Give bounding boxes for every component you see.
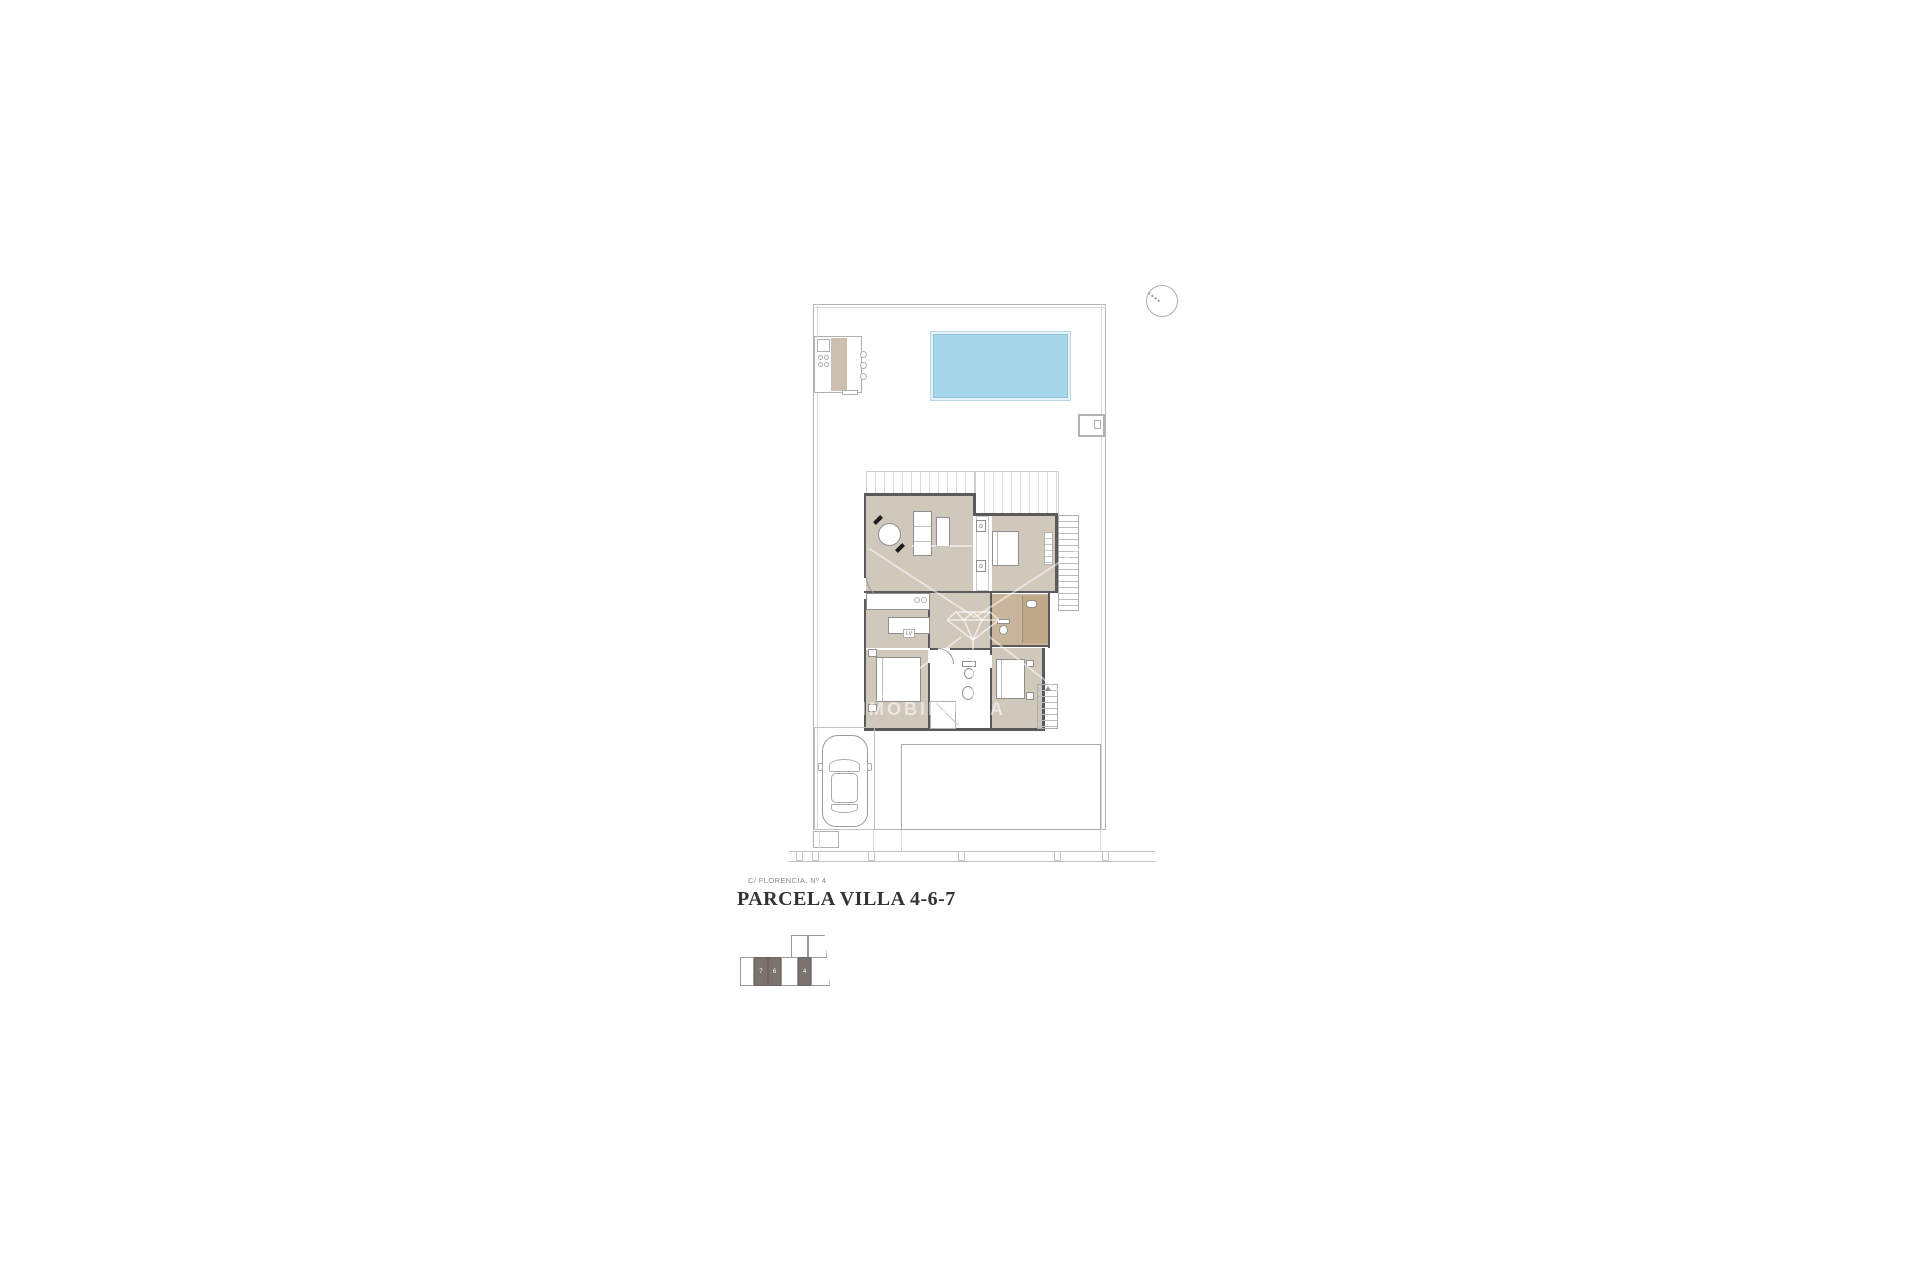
wall — [990, 645, 1050, 647]
corridor-fixture-knob — [979, 564, 983, 568]
site-plan-canvas: LV — [0, 0, 1920, 1280]
toilet-tank — [997, 619, 1010, 624]
sidewalk-tick — [796, 851, 803, 861]
sidewalk-tick — [958, 851, 965, 861]
outdoor-kitchen — [810, 334, 872, 396]
wardrobe — [1044, 532, 1053, 565]
key-plan-upper-cell — [808, 935, 827, 958]
toilet-bowl — [999, 625, 1008, 635]
car-roof — [831, 773, 858, 803]
exterior-stair-upper — [1058, 515, 1079, 611]
key-plan: 7 6 4 — [736, 930, 846, 992]
entrance-steps-line — [819, 831, 820, 848]
terrace — [901, 744, 1101, 830]
bathroom-sink — [1026, 600, 1037, 608]
ac-unit-detail — [1094, 420, 1101, 429]
nightstand — [868, 649, 877, 657]
outdoor-kitchen-foot — [842, 390, 858, 395]
toilet-bowl — [964, 668, 974, 679]
car-rear-window — [831, 804, 858, 813]
key-plan-villa-4: 4 — [798, 957, 811, 986]
sidewalk-tick — [868, 851, 875, 861]
outdoor-sink-bowl — [824, 355, 829, 360]
bar-stool — [860, 351, 867, 358]
sidewalk-line-top — [789, 851, 1155, 852]
sidewalk-line-bottom — [789, 861, 1155, 862]
villa-number: 7 — [759, 969, 762, 975]
wall — [950, 648, 990, 650]
corridor-fixture-knob — [979, 524, 983, 528]
key-plan-cell — [811, 957, 830, 986]
wall — [990, 593, 992, 655]
dining-table — [878, 523, 901, 546]
curb-connector — [901, 830, 902, 851]
bathroom-sink — [962, 686, 974, 700]
kitchen-counter — [866, 593, 930, 610]
curb-connector — [1100, 830, 1101, 851]
shower-tray — [930, 701, 956, 729]
wall — [864, 493, 976, 496]
sofa — [913, 511, 932, 556]
hall-floor — [930, 593, 990, 648]
bar-stool — [860, 362, 867, 369]
outdoor-kitchen-grill — [817, 339, 830, 352]
bed-pillow-line — [882, 658, 883, 701]
nightstand — [1026, 692, 1034, 700]
bed-pillow-line — [1001, 660, 1002, 698]
outdoor-sink-bowl — [824, 362, 829, 367]
kitchen-sink-bowl — [921, 597, 927, 603]
north-circle — [1146, 285, 1178, 317]
north-indicator — [1146, 285, 1180, 319]
outdoor-sink-bowl — [818, 355, 823, 360]
wall — [990, 668, 992, 730]
toilet-tank — [962, 661, 976, 667]
parcel-boundary-inner-right — [1101, 304, 1102, 830]
sidewalk-tick — [812, 851, 819, 861]
plan-address: C/ FLORENCIA, Nº 4 — [748, 876, 826, 885]
curb-connector — [873, 830, 874, 851]
parcel-boundary-inner-top — [813, 307, 1106, 308]
dishwasher-label: LV — [903, 629, 915, 638]
sidewalk-tick — [1054, 851, 1061, 861]
sideboard — [936, 517, 950, 547]
entrance-steps — [813, 831, 839, 848]
wall — [864, 493, 866, 578]
pergola-slats-right — [975, 471, 1059, 515]
key-plan-villa-6: 6 — [768, 957, 781, 986]
bed-pillow-line — [997, 532, 998, 565]
car-windshield — [829, 759, 860, 772]
key-plan-villa-7: 7 — [754, 957, 768, 986]
nightstand — [868, 704, 877, 712]
plan-title: PARCELA VILLA 4-6-7 — [737, 888, 956, 911]
car-mirror — [818, 763, 823, 771]
villa-number: 6 — [773, 969, 776, 975]
wall — [973, 513, 1058, 516]
wall — [1048, 593, 1050, 648]
sidewalk-tick — [1102, 851, 1109, 861]
wall — [864, 599, 866, 730]
key-plan-cell — [740, 957, 754, 986]
kitchen-sink-bowl — [914, 597, 920, 603]
car-icon — [822, 735, 868, 827]
key-plan-upper-cell — [791, 935, 808, 958]
outdoor-kitchen-top — [831, 338, 847, 391]
dishwasher-label-text: LV — [906, 631, 912, 637]
key-plan-cell — [781, 957, 798, 986]
wall — [930, 648, 938, 650]
bar-stool — [860, 373, 867, 380]
villa-number: 4 — [803, 969, 806, 975]
pool — [933, 334, 1068, 398]
pergola-slats-left — [866, 471, 975, 495]
car-mirror — [867, 763, 872, 771]
nightstand — [1026, 660, 1034, 667]
stair-arrow-icon — [1045, 686, 1051, 691]
outdoor-sink-bowl — [818, 362, 823, 367]
